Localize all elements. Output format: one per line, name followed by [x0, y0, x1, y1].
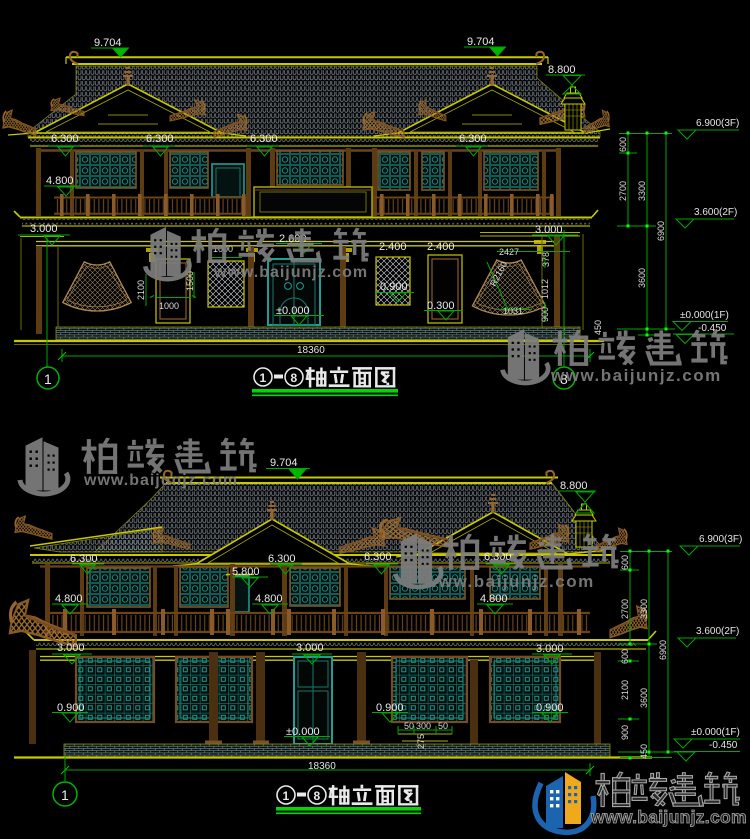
svg-text:8.800: 8.800 [548, 64, 576, 76]
svg-text:0.900: 0.900 [376, 702, 404, 714]
svg-text:2427: 2427 [499, 247, 519, 257]
svg-text:6.300: 6.300 [364, 551, 392, 563]
svg-text:1: 1 [61, 787, 69, 803]
svg-text:1012: 1012 [540, 279, 550, 299]
svg-text:18360: 18360 [308, 761, 336, 772]
svg-text:6900: 6900 [656, 221, 666, 241]
svg-text:6.300: 6.300 [250, 133, 278, 145]
svg-text:3.000: 3.000 [535, 224, 563, 236]
svg-text:3.000: 3.000 [296, 642, 324, 654]
svg-text:2100: 2100 [136, 280, 146, 300]
svg-text:0.900: 0.900 [57, 702, 85, 714]
svg-text:1031: 1031 [503, 306, 523, 316]
svg-text:2700: 2700 [620, 599, 630, 619]
svg-text:600: 600 [618, 137, 628, 152]
svg-text:18360: 18360 [297, 345, 325, 356]
svg-text:-0.450: -0.450 [709, 740, 738, 751]
svg-text:2700: 2700 [618, 181, 628, 201]
svg-text:3600: 3600 [637, 268, 647, 288]
svg-text:0.300: 0.300 [427, 300, 455, 312]
svg-text:8: 8 [314, 789, 321, 803]
svg-text:9.704: 9.704 [467, 36, 495, 48]
svg-text:450: 450 [639, 744, 649, 759]
svg-text:www.baijunjz.com: www.baijunjz.com [83, 472, 238, 489]
svg-text:www.baijunjz.com: www.baijunjz.com [590, 807, 747, 827]
svg-text:3.000: 3.000 [57, 642, 85, 654]
svg-text:1000: 1000 [159, 301, 179, 311]
svg-text:600: 600 [620, 649, 630, 664]
svg-text:±0.000(1F): ±0.000(1F) [691, 727, 740, 738]
svg-text:6.300: 6.300 [70, 553, 98, 565]
svg-text:6900: 6900 [658, 640, 668, 660]
svg-text:4.800: 4.800 [55, 593, 83, 605]
svg-text:0.900: 0.900 [380, 281, 408, 293]
svg-text:±0.000: ±0.000 [276, 305, 310, 317]
svg-text:-0.450: -0.450 [698, 323, 727, 334]
svg-text:3600: 3600 [639, 688, 649, 708]
svg-text:3300: 3300 [639, 599, 649, 619]
svg-text:6.300: 6.300 [459, 133, 487, 145]
svg-text:50: 50 [438, 721, 448, 731]
svg-text:1: 1 [283, 789, 290, 803]
svg-text:±0.000: ±0.000 [286, 726, 320, 738]
svg-text:±0.000(1F): ±0.000(1F) [680, 310, 729, 321]
svg-text:6.300: 6.300 [51, 133, 79, 145]
svg-text:5.800: 5.800 [232, 566, 260, 578]
svg-text:275: 275 [416, 734, 426, 749]
svg-text:www.baijunjz.com: www.baijunjz.com [550, 366, 722, 385]
svg-text:6.900(3F): 6.900(3F) [699, 534, 742, 545]
svg-text:www.baijunjz.com: www.baijunjz.com [213, 264, 368, 281]
svg-text:378: 378 [541, 252, 551, 267]
svg-text:4.800: 4.800 [255, 593, 283, 605]
svg-text:8: 8 [291, 371, 298, 385]
svg-text:4.800: 4.800 [480, 593, 508, 605]
svg-text:6.900(3F): 6.900(3F) [696, 118, 739, 129]
svg-text:2.400: 2.400 [379, 241, 407, 253]
svg-text:8.800: 8.800 [560, 480, 588, 492]
svg-text:3300: 3300 [637, 181, 647, 201]
svg-text:50: 50 [404, 721, 414, 731]
svg-text:6.300: 6.300 [146, 133, 174, 145]
svg-text:900: 900 [540, 307, 550, 322]
svg-text:1: 1 [44, 371, 52, 387]
svg-text:4.800: 4.800 [46, 175, 74, 187]
svg-text:300: 300 [416, 721, 431, 731]
svg-text:900: 900 [620, 725, 630, 740]
svg-text:9.704: 9.704 [270, 457, 298, 469]
svg-text:www.baijunjz.com: www.baijunjz.com [423, 572, 595, 591]
svg-text:3.600(2F): 3.600(2F) [694, 207, 737, 218]
svg-text:3.600(2F): 3.600(2F) [696, 626, 739, 637]
svg-text:1: 1 [260, 371, 267, 385]
svg-text:6.300: 6.300 [268, 553, 296, 565]
svg-text:600: 600 [620, 555, 630, 570]
svg-text:450: 450 [593, 320, 603, 335]
svg-text:3.000: 3.000 [30, 223, 58, 235]
svg-text:3.000: 3.000 [536, 643, 564, 655]
svg-text:0.900: 0.900 [536, 702, 564, 714]
svg-text:2100: 2100 [620, 680, 630, 700]
svg-text:9.704: 9.704 [94, 37, 122, 49]
svg-text:2.400: 2.400 [427, 241, 455, 253]
